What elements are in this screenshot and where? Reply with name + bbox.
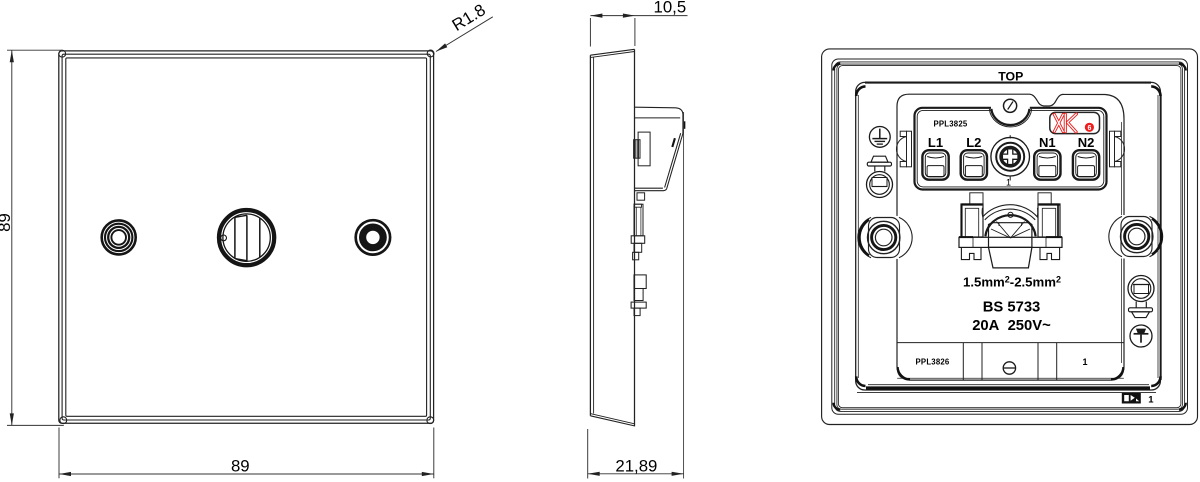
svg-text:1.5mm2-2.5mm2: 1.5mm2-2.5mm2 — [963, 274, 1061, 289]
svg-text:1: 1 — [1082, 357, 1087, 367]
svg-text:20A 250V~: 20A 250V~ — [972, 318, 1051, 334]
svg-text:N2: N2 — [1078, 135, 1095, 150]
svg-text:PPL3825: PPL3825 — [934, 120, 968, 129]
svg-text:89: 89 — [0, 213, 14, 232]
svg-text:10,5: 10,5 — [654, 0, 687, 17]
svg-text:L2: L2 — [966, 135, 981, 150]
svg-text:N1: N1 — [1039, 135, 1056, 150]
svg-text:1: 1 — [1006, 177, 1011, 187]
svg-text:L1: L1 — [928, 135, 943, 150]
svg-text:TOP: TOP — [998, 70, 1023, 84]
svg-text:1: 1 — [1148, 395, 1154, 406]
svg-text:PPL3826: PPL3826 — [916, 357, 950, 366]
svg-text:6: 6 — [1087, 125, 1091, 132]
svg-text:BS 5733: BS 5733 — [983, 300, 1041, 316]
svg-text:21,89: 21,89 — [615, 457, 657, 476]
svg-text:89: 89 — [231, 457, 250, 476]
